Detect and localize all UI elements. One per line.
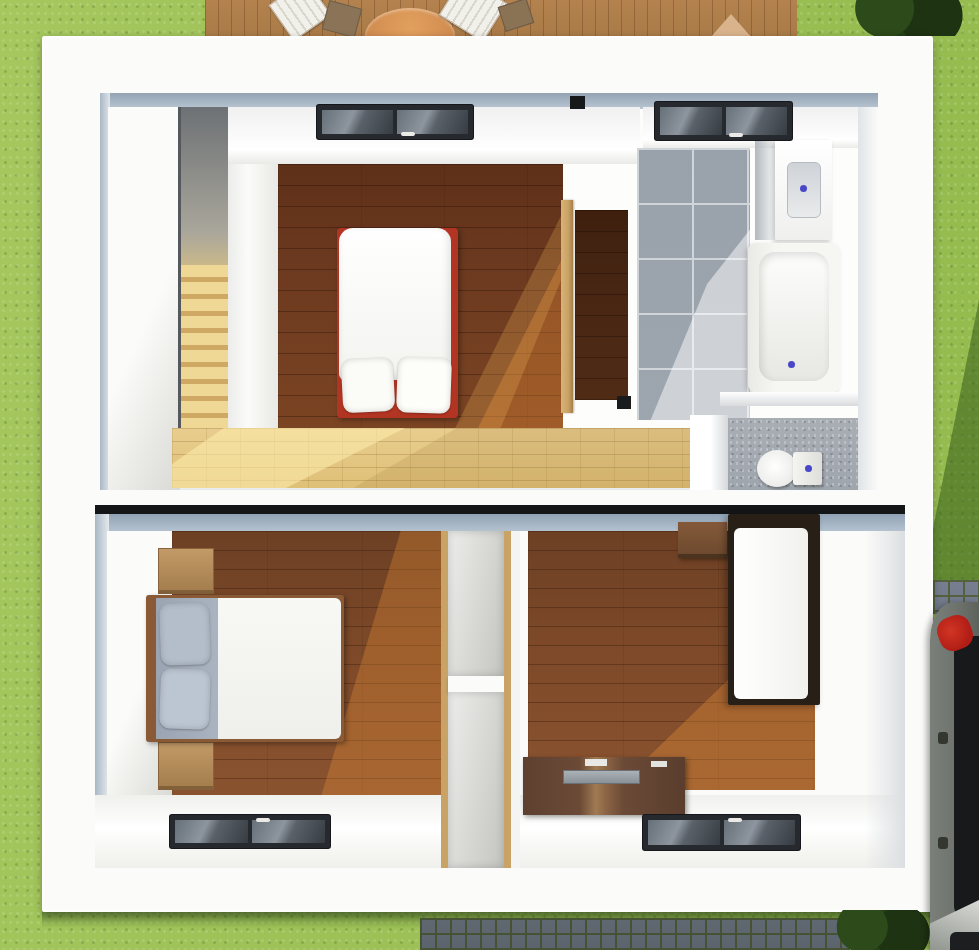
shelf-niche [448,692,504,868]
skylight-pane [726,107,788,135]
stair-wall-edge [178,107,181,430]
mattress [734,528,808,699]
laptop [563,770,640,784]
skylight-pane [175,820,248,843]
skylight-pane [322,110,393,134]
wall-cabinet [678,522,727,558]
toilet-bowl [757,450,797,487]
shelving-column [441,531,520,868]
skylight-window [317,105,473,139]
parasol-tip [710,14,752,38]
grass-shadow [933,300,979,582]
skylight-window [655,102,792,140]
wall-shadow-line [95,505,905,514]
sink-faucet [800,185,807,192]
paper-sheet [651,761,667,767]
skylight-pane [724,820,796,845]
skylight-handle [728,818,742,822]
master-bed [337,228,458,418]
paper-sheet [585,759,607,766]
wall-vent [570,96,585,109]
car-window [954,636,979,918]
bush [828,910,942,950]
desk [523,757,685,815]
double-bed [146,595,344,742]
toilet-room-wall [720,392,860,406]
stairwell-dark-top [180,107,228,267]
lower-floor-interior [95,505,905,868]
closet-shade [575,210,628,400]
skylight-window [643,815,800,850]
stairwell-wall [108,107,180,490]
skylight-handle [401,132,415,136]
skylight-handle [729,133,743,137]
nightstand [158,548,214,594]
pillow [159,668,211,730]
car-door-handle [938,837,948,849]
house [42,36,933,912]
deck-chair [498,0,535,32]
skylight-window [170,815,330,848]
toilet-partition [690,415,728,490]
shelf-edge-tan [441,531,448,868]
nightstand [158,742,214,790]
skylight-pane [648,820,720,845]
tub-drain [788,361,795,368]
door-frame-mark [617,396,631,409]
shelf-niche [448,531,504,676]
closet-door [561,200,573,413]
cobble-shade [420,918,850,950]
skylight-pane [397,110,468,134]
staircase [180,265,228,430]
vanity-shadow [755,140,777,240]
car-door-handle [938,732,948,744]
wall-face-right [858,107,878,490]
single-bed [728,514,820,705]
skylight-pane [660,107,722,135]
pillow [159,602,211,666]
pillow [396,356,452,414]
deck-chair [322,0,363,38]
skylight-handle [256,818,270,822]
upper-floor-interior [100,93,878,490]
parked-car [930,602,979,950]
toilet-flush-button [805,465,812,472]
vanity-unit [775,140,832,240]
shelf-board [448,676,504,692]
car-windshield [950,932,979,950]
wall-face-right [865,531,905,868]
skylight-pane [252,820,325,843]
shelf-edge-tan [504,531,511,868]
bathtub [748,243,840,392]
floor-plan-render [0,0,979,950]
bush [845,0,977,36]
wooden-deck [205,0,797,38]
deck-lounger [269,0,332,38]
pillow [341,357,396,414]
